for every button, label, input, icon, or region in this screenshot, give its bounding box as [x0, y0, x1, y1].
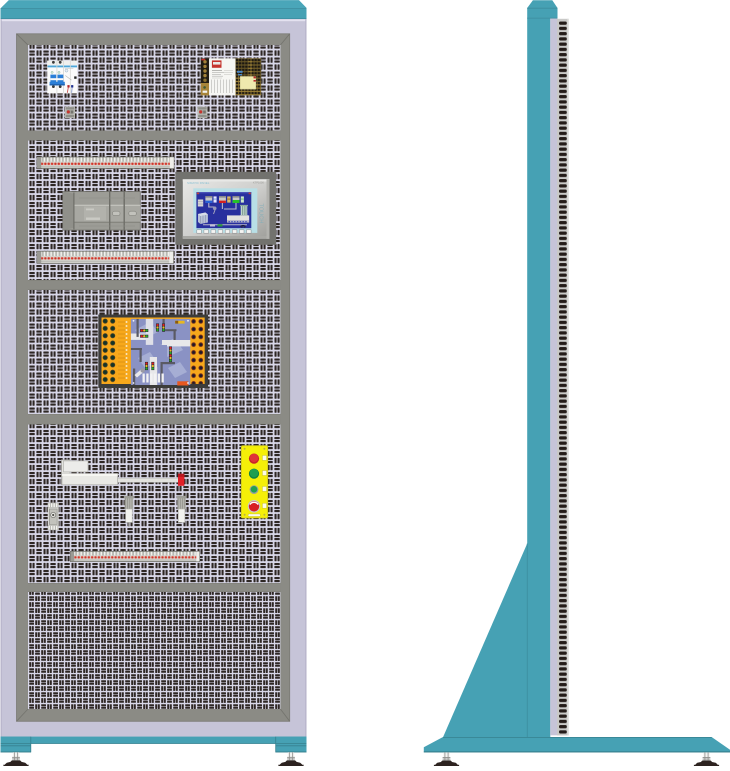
svg-text:TOUCH: TOUCH	[258, 204, 264, 224]
svg-text:SIMATIC PANEL: SIMATIC PANEL	[187, 181, 210, 185]
svg-text:KTP1000: KTP1000	[253, 181, 264, 185]
